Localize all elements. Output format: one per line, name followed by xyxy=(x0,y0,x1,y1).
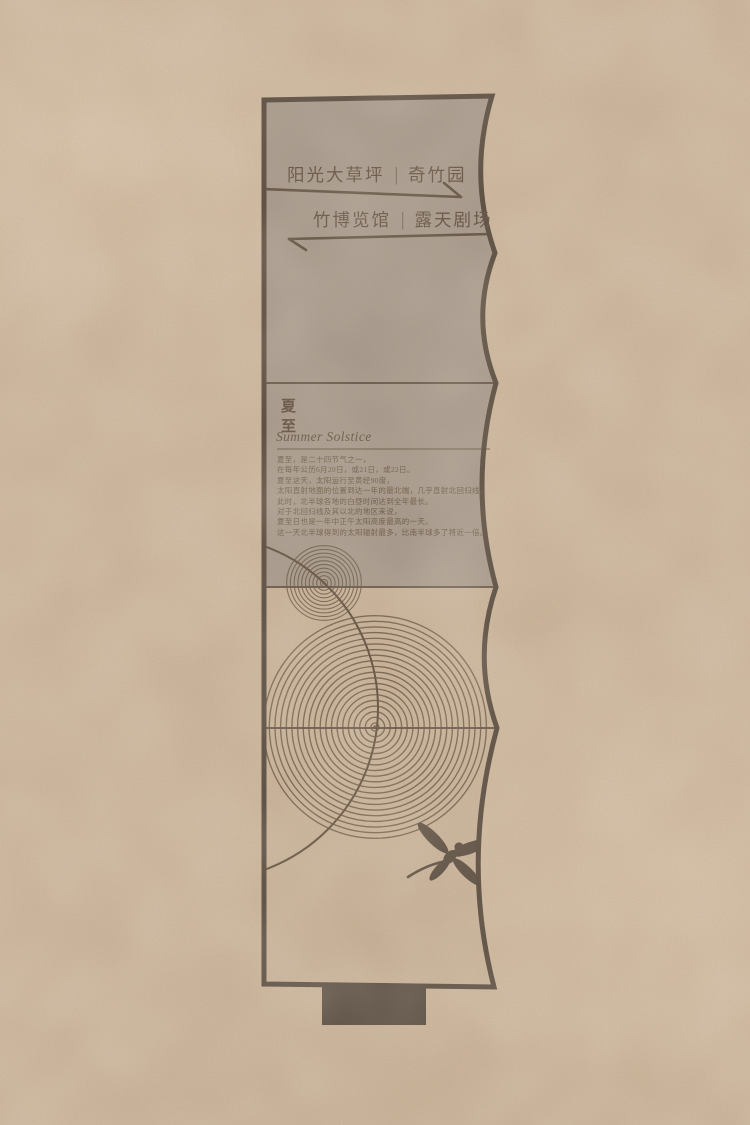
description-line: 夏至，是二十四节气之一， xyxy=(277,455,493,465)
destination-label: 阳光大草坪 xyxy=(287,162,385,187)
direction-row-top: 阳光大草坪 | 奇竹园 xyxy=(287,162,467,187)
season-description: 夏至，是二十四节气之一， 在每年公历6月20日，或21日，或22日。 夏至这天，… xyxy=(277,455,493,538)
sign-base xyxy=(322,984,426,1025)
description-line: 此时，北半球各地的白昼时间达到全年最长。 xyxy=(277,497,493,507)
label-separator: | xyxy=(401,208,405,231)
description-line: 在每年公历6月20日，或21日，或22日。 xyxy=(277,465,493,475)
destination-label: 露天剧场 xyxy=(415,207,493,232)
destination-label: 竹博览馆 xyxy=(313,207,391,232)
kraft-paper-background: { "directory": { "row1": { "label_a": "阳… xyxy=(0,0,750,1125)
label-separator: | xyxy=(395,163,399,186)
description-line: 夏至日也是一年中正午太阳高度最高的一天。 xyxy=(277,517,493,527)
season-title-english: Summer Solstice xyxy=(276,429,372,445)
description-line: 太阳直射地面的位置到达一年的最北端，几乎直射北回归线， xyxy=(277,486,493,496)
direction-row-bottom: 竹博览馆 | 露天剧场 xyxy=(313,207,493,232)
description-line: 夏至这天，太阳运行至黄经90度， xyxy=(277,476,493,486)
destination-label: 奇竹园 xyxy=(408,162,467,187)
description-line: 这一天北半球得到的太阳辐射最多，比南半球多了将近一倍。 xyxy=(277,528,493,538)
description-line: 对于北回归线及其以北的地区来说， xyxy=(277,507,493,517)
